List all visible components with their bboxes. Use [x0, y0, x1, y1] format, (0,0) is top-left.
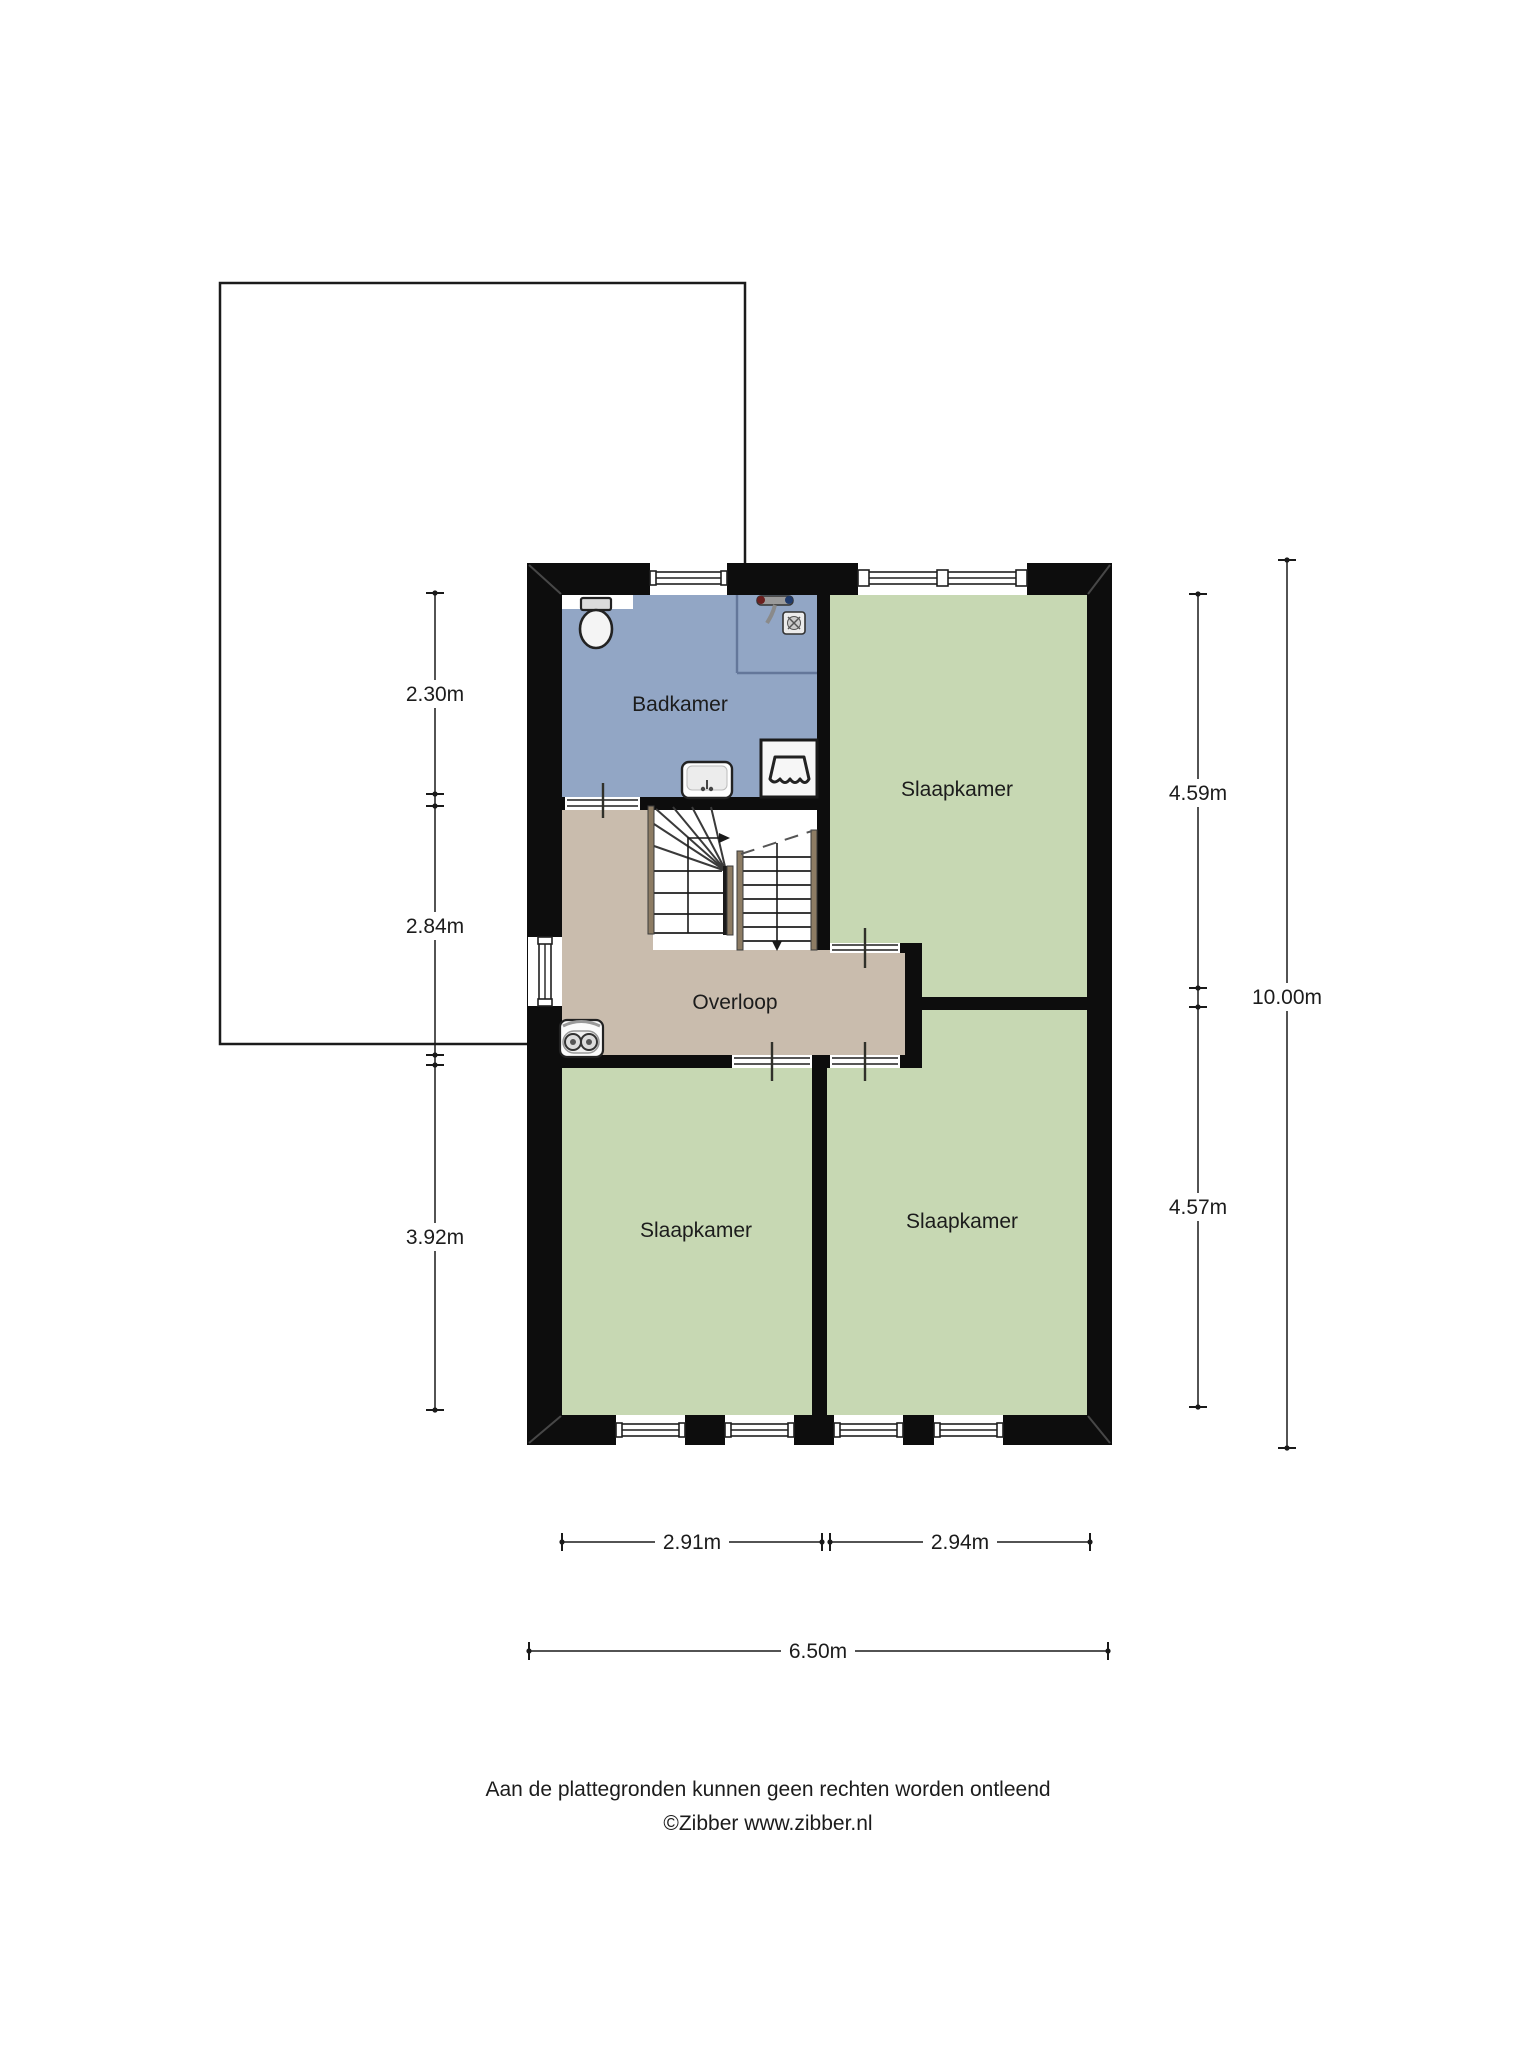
footer-disclaimer: Aan de plattegronden kunnen geen rechten… [485, 1778, 1050, 1801]
dimension-label: 2.91m [663, 1531, 721, 1554]
dimension-label: 2.30m [406, 683, 464, 706]
room-label-overloop: Overloop [692, 991, 777, 1014]
dimension-lines-right: 4.59m 4.57m 10.00m [1161, 557, 1331, 1450]
dimension-label: 6.50m [789, 1640, 847, 1663]
dimension-label: 10.00m [1252, 986, 1322, 1009]
room-label-slaapkamer-bottom-right: Slaapkamer [906, 1210, 1018, 1233]
window-bottom-4 [934, 1415, 1003, 1445]
room-label-badkamer: Badkamer [632, 693, 728, 716]
floorplan-page: 2.30m 2.84m 3.92m 4.59m 4.57m 10.00m [0, 0, 1536, 2048]
room-label-slaapkamer-bottom-left: Slaapkamer [640, 1219, 752, 1242]
dimension-lines-bottom: 2.91m 2.94m 6.50m [526, 1528, 1110, 1665]
window-bottom-3 [834, 1415, 903, 1445]
window-overloop-left [528, 937, 562, 1006]
room-label-slaapkamer-top: Slaapkamer [901, 778, 1013, 801]
dimension-label: 2.84m [406, 915, 464, 938]
dimension-label: 2.94m [931, 1531, 989, 1554]
stairwell [653, 810, 817, 950]
dimension-label: 3.92m [406, 1226, 464, 1249]
shower-tray-icon [761, 740, 817, 797]
electrical-outlet-icon [560, 1020, 603, 1057]
footer-copyright: ©Zibber www.zibber.nl [663, 1812, 872, 1835]
shower-drain-icon [783, 612, 805, 634]
sink-icon [682, 762, 732, 798]
window-slaapkamer-top [858, 563, 1027, 595]
window-bottom-2 [725, 1415, 794, 1445]
dimension-label: 4.57m [1169, 1196, 1227, 1219]
window-badkamer [650, 563, 727, 595]
window-bottom-1 [616, 1415, 685, 1445]
floorplan-drawing: 2.30m 2.84m 3.92m 4.59m 4.57m 10.00m [0, 0, 1536, 2048]
dimension-label: 4.59m [1169, 782, 1227, 805]
